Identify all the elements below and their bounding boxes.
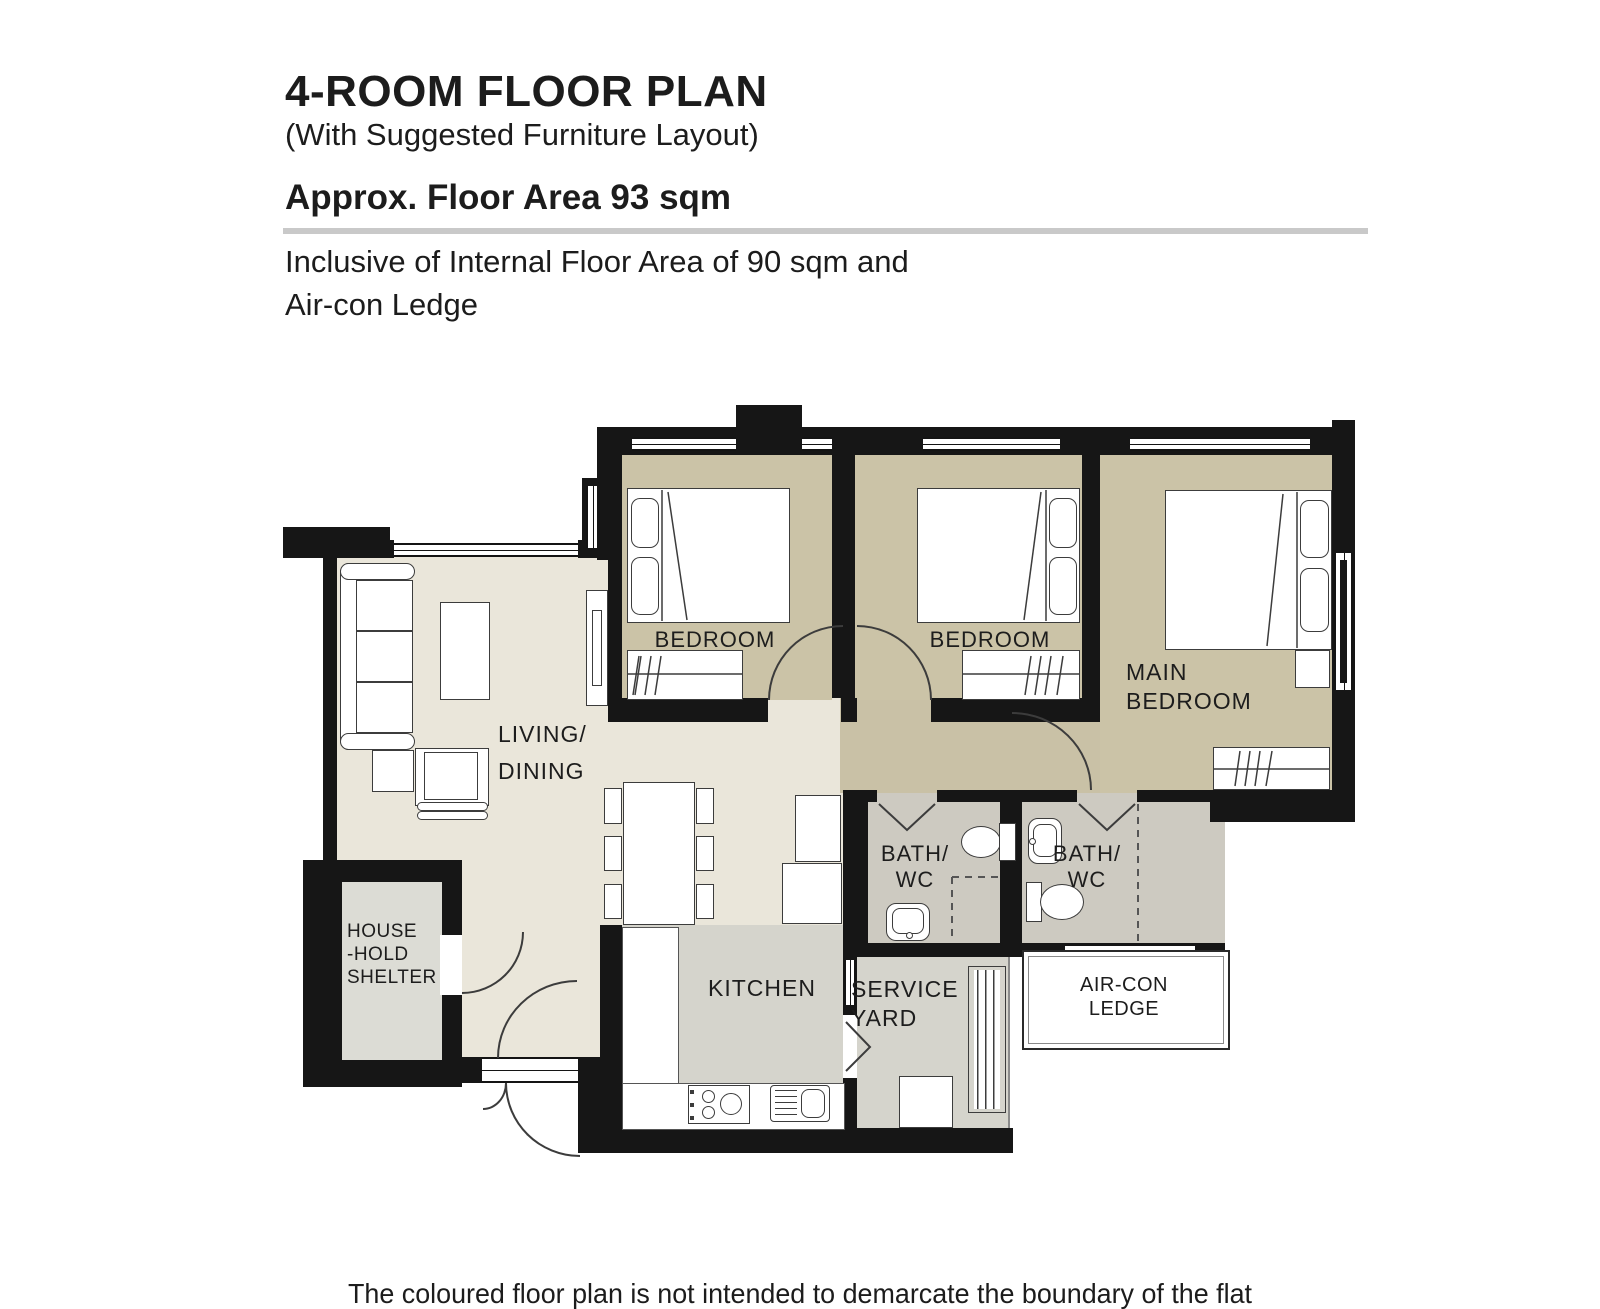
wall-bath-top-c (1137, 790, 1225, 802)
wall-kitchen-left-upper (600, 925, 622, 1057)
tv-screen (592, 610, 602, 686)
sofa-seat-3 (356, 682, 413, 733)
bedroom1-pillow-2 (631, 557, 659, 615)
service-yard-label: SERVICE YARD (851, 975, 959, 1033)
shelter-label-line1: HOUSE (347, 920, 437, 943)
main-bed-pillow-2 (1300, 568, 1329, 632)
dining-chair-right-2 (696, 836, 714, 871)
shelter-label-line2: -HOLD (347, 943, 437, 966)
aircon-label-line1: AIR-CON (1040, 973, 1208, 997)
stove-burner-2 (702, 1106, 715, 1119)
shelter-door-gap (440, 935, 462, 995)
wall-bedrooms-bottom-a (622, 698, 768, 722)
wall-bath1-left (843, 790, 868, 955)
bedroom1-window-a (632, 437, 736, 451)
wall-bath-bottom-left (843, 943, 1022, 957)
divider-rule (283, 228, 1368, 234)
kitchen-sink-strainer (775, 1090, 797, 1117)
bedroom2-window (923, 437, 1060, 451)
sofa-armrest-top (340, 563, 415, 580)
bedroom1-label: BEDROOM (630, 627, 800, 653)
armchair-base-2 (417, 811, 488, 820)
dining-chair-left-2 (604, 836, 622, 871)
entrance-small-leaf-arc (483, 1083, 507, 1110)
bath1-toilet-bowl (961, 826, 1001, 858)
bath1-label-line1: BATH/ (868, 841, 962, 867)
shelter-label-line3: SHELTER (347, 966, 437, 989)
main-bedroom-label-line2: BEDROOM (1126, 687, 1252, 716)
bath2-label-line2: WC (1028, 867, 1146, 893)
entrance-outer-door-arc (505, 1083, 580, 1157)
bedroom2-pillow-2 (1049, 557, 1077, 615)
wall-left-outer (323, 552, 337, 870)
main-bedroom-label-line1: MAIN (1126, 658, 1252, 687)
stove-burner-3 (720, 1093, 742, 1115)
bath2-label: BATH/ WC (1028, 841, 1146, 893)
dining-chair-left-3 (604, 884, 622, 919)
service-yard-drying-rack (968, 966, 1006, 1113)
bedroom2-pillow-1 (1049, 498, 1077, 548)
bath1-sink-basin (892, 908, 924, 934)
dining-chair-right-3 (696, 884, 714, 919)
dining-chair-right-1 (696, 788, 714, 824)
service-yard-label-line1: SERVICE (851, 975, 959, 1004)
wall-bedroom1-left-upper (597, 455, 622, 560)
bath1-toilet-tank (999, 823, 1016, 861)
bedroom1-window-b (802, 437, 832, 451)
sofa-armrest-bottom (340, 733, 415, 750)
bedroom2-label: BEDROOM (905, 627, 1075, 653)
armchair-base-1 (417, 802, 488, 811)
kitchen-counter-left (622, 927, 679, 1085)
wall-divider-bed2-main (1082, 455, 1100, 715)
wall-main-bottom-right (1210, 790, 1355, 822)
main-bedroom-label: MAIN BEDROOM (1126, 658, 1252, 716)
household-shelter-label: HOUSE -HOLD SHELTER (347, 920, 437, 989)
wall-top-protrusion (736, 405, 802, 429)
page-subtitle: (With Suggested Furniture Layout) (285, 116, 768, 154)
entrance-threshold (482, 1057, 578, 1083)
aircon-ledge-label: AIR-CON LEDGE (1040, 973, 1208, 1021)
aircon-label-line2: LEDGE (1040, 997, 1208, 1021)
kitchen-label: KITCHEN (682, 975, 842, 1001)
coffee-table (440, 602, 490, 700)
sofa-seat-2 (356, 631, 413, 682)
wall-living-window-stub-left (378, 540, 394, 558)
living-window (394, 543, 578, 557)
wall-bedrooms-bottom-b (841, 698, 857, 722)
bath1-sink-drain (906, 932, 913, 939)
living-dining-label: LIVING/ DINING (498, 716, 587, 790)
main-wardrobe (1213, 747, 1330, 790)
bath1-label: BATH/ WC (868, 841, 962, 893)
bedroom2-wardrobe (962, 650, 1080, 700)
disclaimer-text: The coloured floor plan is not intended … (32, 1278, 1568, 1309)
bath2-label-line1: BATH/ (1028, 841, 1146, 867)
living-label-line2: DINING (498, 753, 587, 790)
living-label-line1: LIVING/ (498, 716, 587, 753)
wall-bedroom1-left-lower (608, 560, 622, 722)
inclusive-note-line1: Inclusive of Internal Floor Area of 90 s… (285, 240, 909, 283)
bedroom1-wardrobe (627, 650, 743, 700)
wall-kitchen-service-divider-lower (843, 1078, 857, 1128)
wall-kitchen-bottom (600, 1128, 1013, 1153)
stove-burner-1 (702, 1090, 715, 1103)
inclusive-note: Inclusive of Internal Floor Area of 90 s… (285, 240, 909, 326)
kitchen-sink-basin (801, 1089, 825, 1118)
floor-area-line: Approx. Floor Area 93 sqm (285, 178, 768, 218)
armchair-seat (424, 752, 478, 800)
stove-knobs (690, 1090, 694, 1120)
cabinet-lower (782, 863, 842, 924)
bath1-label-line2: WC (868, 867, 962, 893)
main-right-window-leaf (1340, 560, 1347, 683)
header-block: 4-ROOM FLOOR PLAN (With Suggested Furnit… (285, 68, 768, 218)
side-table (372, 750, 414, 792)
service-yard-label-line2: YARD (851, 1004, 959, 1033)
page-title: 4-ROOM FLOOR PLAN (285, 68, 768, 116)
floor-plan-page: 4-ROOM FLOOR PLAN (With Suggested Furnit… (0, 0, 1600, 1309)
bedroom1-pillow-1 (631, 498, 659, 548)
main-bedside-shelf (1295, 650, 1330, 688)
dining-table (623, 782, 695, 925)
cabinet-upper (795, 795, 841, 862)
sofa-seat-1 (356, 580, 413, 631)
inclusive-note-line2: Air-con Ledge (285, 283, 909, 326)
service-yard-right-edge (1008, 957, 1010, 1128)
wall-bath-divider (1000, 790, 1022, 957)
main-bed-pillow-1 (1300, 500, 1329, 558)
washing-machine (899, 1076, 953, 1128)
dining-chair-left-1 (604, 788, 622, 824)
main-bedroom-window (1130, 437, 1310, 451)
